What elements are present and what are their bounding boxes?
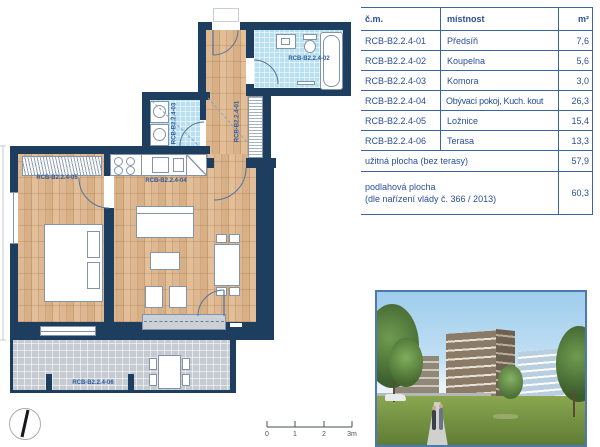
- scale-bar: [267, 421, 352, 427]
- washer-drum: [153, 105, 166, 118]
- cell-area: 26,3: [558, 91, 593, 110]
- sofa: [136, 206, 194, 238]
- north-arrow-icon: [10, 409, 41, 440]
- picnic-people: [493, 414, 518, 419]
- cell-area: 13,3: [558, 131, 593, 150]
- summary-label: užitná plocha (bez terasy): [361, 156, 558, 166]
- building-render-photo: [375, 290, 587, 447]
- terrace-table: [158, 355, 181, 389]
- terrace-floor: [10, 340, 236, 393]
- tree: [389, 338, 422, 387]
- coffee-table: [150, 252, 180, 270]
- cell-room: Terasa: [441, 136, 558, 146]
- cell-room: Obývací pokoj, Kuch. kout: [441, 96, 558, 106]
- wall-right-outer: [256, 166, 274, 322]
- summary-label: podlahová plocha (dle nařízení vlády č. …: [361, 181, 558, 205]
- terrace-chair-2: [149, 374, 157, 386]
- wall-wardrobe-right: [263, 96, 271, 158]
- entrance-door-gap: [212, 22, 240, 30]
- terrace-sliding-door: [142, 314, 226, 330]
- terrace-post-2: [128, 374, 134, 392]
- table-header-row: č.m. místnost m²: [361, 7, 593, 31]
- dining-chair-2: [229, 234, 240, 243]
- room-label-bedroom: RCB-B2.2.4-05: [27, 175, 87, 182]
- room-label-storage: RCB-B2.2.4-03: [172, 94, 179, 154]
- cell-room: Předsíň: [441, 36, 558, 46]
- cell-area: 7,6: [558, 31, 593, 50]
- north-arrow-needle: [22, 410, 28, 437]
- table-row: RCB-B2.2.4-03 Komora 3,0: [361, 71, 593, 91]
- scale-tick-1: 1: [289, 431, 301, 438]
- counter-divider: [141, 155, 142, 175]
- tree-trunk: [573, 390, 576, 418]
- room-label-living: RCB-B2.2.4-04: [136, 178, 196, 185]
- room-label-hall: RCB-B2.2.4-01: [235, 92, 242, 152]
- room-label-bath: RCB-B2.2.4-02: [276, 56, 342, 63]
- hall-floor: [206, 30, 248, 158]
- sill-mark: [230, 323, 242, 327]
- summary-area: 60,3: [558, 172, 593, 214]
- stove-burner-4: [126, 166, 135, 175]
- dishwasher: [173, 158, 184, 172]
- stove-burner-2: [126, 157, 135, 166]
- summary-row-usable: užitná plocha (bez terasy) 57,9: [361, 151, 593, 172]
- room-area-table: č.m. místnost m² RCB-B2.2.4-01 Předsíň 7…: [361, 7, 593, 215]
- summary-label-line1: podlahová plocha: [365, 181, 558, 193]
- terrace-sliding-door-line: [144, 321, 224, 322]
- summary-area: 57,9: [558, 151, 593, 171]
- cell-code: RCB-B2.2.4-02: [361, 51, 441, 70]
- bedroom-window-line: [40, 331, 96, 332]
- dining-table: [214, 244, 240, 286]
- terrace-edge-bottom: [10, 390, 236, 393]
- header-code: č.m.: [361, 8, 441, 30]
- cell-code: RCB-B2.2.4-01: [361, 31, 441, 50]
- wall-bath-right: [343, 22, 351, 96]
- table-row: RCB-B2.2.4-05 Ložnice 15,4: [361, 111, 593, 131]
- cell-code: RCB-B2.2.4-05: [361, 111, 441, 130]
- fridge: [186, 154, 207, 176]
- header-room: místnost: [441, 14, 558, 24]
- bed-pillow-1: [87, 231, 100, 258]
- wall-kitchen-top: [103, 146, 210, 154]
- summary-label-line2: (dle nařízení vlády č. 366 / 2013): [365, 193, 558, 205]
- dryer-drum: [153, 128, 166, 141]
- bath-door-gap: [246, 58, 254, 84]
- sofa-back-line: [137, 213, 193, 214]
- table-row: RCB-B2.2.4-04 Obývací pokoj, Kuch. kout …: [361, 91, 593, 111]
- wall-storage-hall: [200, 100, 206, 120]
- stove-burner-3: [114, 166, 123, 175]
- dining-chair-3: [216, 287, 227, 296]
- sink-basin: [281, 38, 290, 45]
- bedroom-wardrobe: [22, 156, 102, 176]
- car: [385, 394, 406, 402]
- grass: [377, 396, 585, 445]
- bedroom-side-window: [10, 192, 18, 244]
- cell-area: 5,6: [558, 51, 593, 70]
- person: [439, 408, 443, 429]
- wall-bedroom-top: [10, 146, 104, 154]
- table-row: RCB-B2.2.4-06 Terasa 13,3: [361, 131, 593, 151]
- dining-chair-4: [229, 287, 240, 296]
- terrace-edge-right: [230, 340, 236, 393]
- wall-hall-bottom-left: [206, 158, 214, 168]
- cell-area: 15,4: [558, 111, 593, 130]
- cell-room: Ložnice: [441, 116, 558, 126]
- stove-burner-1: [114, 157, 123, 166]
- cell-code: RCB-B2.2.4-06: [361, 131, 441, 150]
- terrace-edge-left: [10, 340, 13, 393]
- cell-area: 3,0: [558, 71, 593, 90]
- wall-storage-left: [142, 100, 150, 147]
- cell-room: Koupelna: [441, 56, 558, 66]
- cell-code: RCB-B2.2.4-04: [361, 91, 441, 110]
- dining-chair-1: [216, 234, 227, 243]
- cell-room: Komora: [441, 76, 558, 86]
- summary-row-floor: podlahová plocha (dle nařízení vlády č. …: [361, 172, 593, 215]
- page: { "table": { "headers": { "code": "č.m."…: [0, 0, 600, 443]
- bedroom-side-window-line: [13, 192, 14, 244]
- terrace-post-1: [46, 374, 52, 392]
- hall-wardrobe: [248, 96, 263, 158]
- pouf-2: [169, 286, 187, 308]
- terrace-chair-4: [182, 374, 190, 386]
- header-area: m²: [558, 8, 593, 30]
- tree: [498, 365, 523, 399]
- scale-tick-3: 3m: [346, 431, 358, 438]
- terrace-chair-1: [149, 358, 157, 370]
- bedroom-door-gap: [104, 176, 114, 208]
- toilet-bowl: [304, 40, 316, 53]
- terrace-chair-3: [182, 358, 190, 370]
- wall-hall-left: [198, 30, 206, 100]
- kitchen-sink: [152, 157, 169, 173]
- room-label-terrace: RCB-B2.2.4-06: [63, 380, 123, 387]
- scale-tick-0: 0: [261, 431, 273, 438]
- table-row: RCB-B2.2.4-01 Předsíň 7,6: [361, 31, 593, 51]
- bath-shelf: [297, 81, 315, 85]
- person: [432, 410, 436, 430]
- entrance-landing: [213, 8, 239, 22]
- cell-code: RCB-B2.2.4-03: [361, 71, 441, 90]
- pouf-1: [145, 286, 163, 308]
- bed-pillow-2: [87, 262, 100, 289]
- table-row: RCB-B2.2.4-02 Koupelna 5,6: [361, 51, 593, 71]
- scale-tick-2: 2: [318, 431, 330, 438]
